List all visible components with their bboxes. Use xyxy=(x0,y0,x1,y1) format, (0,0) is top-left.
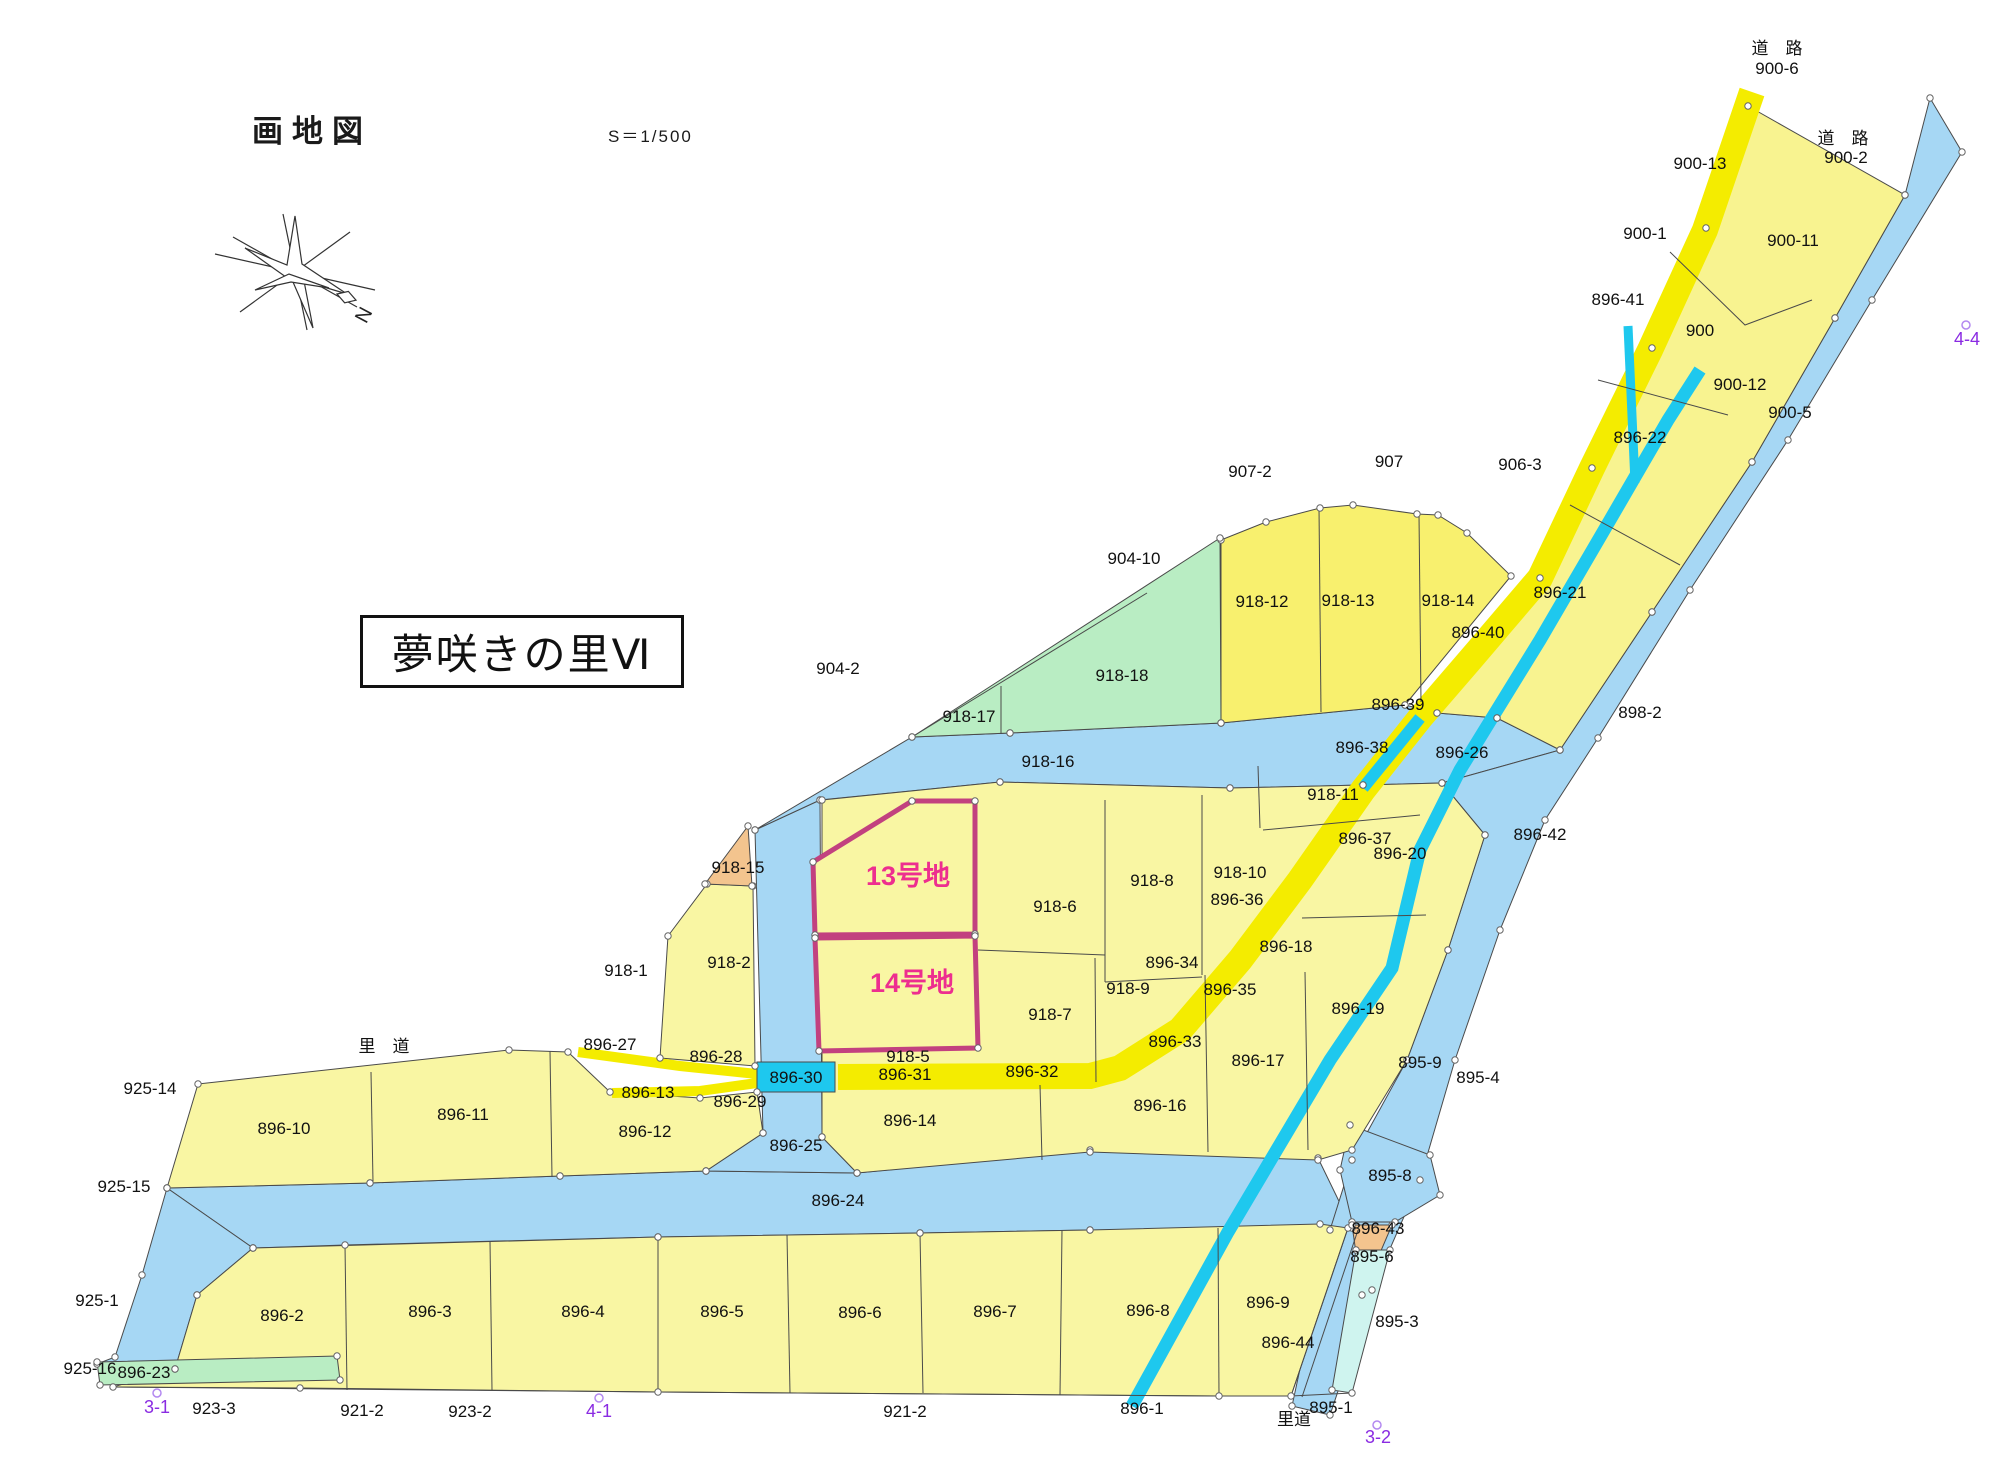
page-title: 画地図 xyxy=(252,106,372,151)
compass-rose-icon: N xyxy=(215,214,380,330)
parcel-label: 道 路 xyxy=(1818,129,1869,148)
survey-point xyxy=(1542,817,1548,823)
survey-point xyxy=(1427,1152,1433,1158)
parcel-label: 896-41 xyxy=(1592,290,1645,309)
survey-point xyxy=(1317,1221,1323,1227)
survey-point xyxy=(172,1366,178,1372)
parcel-label: 895-8 xyxy=(1368,1166,1411,1185)
parcel-label: 896-42 xyxy=(1514,825,1567,844)
parcel-label: 895-6 xyxy=(1350,1247,1393,1266)
survey-point xyxy=(1452,1057,1458,1063)
survey-point xyxy=(557,1173,563,1179)
survey-point xyxy=(749,883,755,889)
parcel-label: 896-34 xyxy=(1146,953,1199,972)
parcel-label: 896-38 xyxy=(1336,738,1389,757)
survey-point xyxy=(917,1230,923,1236)
survey-point xyxy=(1595,735,1601,741)
survey-point xyxy=(1414,511,1420,517)
survey-point xyxy=(297,1385,303,1391)
survey-point xyxy=(1329,1387,1335,1393)
survey-point xyxy=(1703,225,1709,231)
survey-point xyxy=(1369,1287,1375,1293)
survey-point xyxy=(1216,1393,1222,1399)
area-block-chain-900 xyxy=(1437,106,1905,750)
parcel-label: 896-14 xyxy=(884,1111,937,1130)
survey-point xyxy=(1227,785,1233,791)
benchmark-point xyxy=(153,1389,161,1397)
survey-point xyxy=(194,1292,200,1298)
parcel-label: 918-12 xyxy=(1236,592,1289,611)
survey-point xyxy=(703,1168,709,1174)
parcel-label: 900-13 xyxy=(1674,154,1727,173)
benchmark-label: 3-2 xyxy=(1365,1427,1391,1447)
survey-point xyxy=(1494,715,1500,721)
survey-point xyxy=(1337,1167,1343,1173)
survey-point xyxy=(997,779,1003,785)
survey-point xyxy=(810,859,816,865)
survey-point xyxy=(697,1095,703,1101)
survey-point xyxy=(1649,609,1655,615)
survey-point xyxy=(1349,1147,1355,1153)
map-scale-label: S＝1/500 xyxy=(608,122,693,147)
parcel-label: 918-11 xyxy=(1307,785,1359,804)
parcel-label: 918-15 xyxy=(712,858,765,877)
highlight-lot-label: 14号地 xyxy=(870,968,954,998)
parcel-label: 896-30 xyxy=(770,1068,823,1087)
survey-point xyxy=(1317,505,1323,511)
survey-point xyxy=(752,827,758,833)
survey-point xyxy=(1087,1149,1093,1155)
parcel-label: 918-9 xyxy=(1106,979,1149,998)
survey-point xyxy=(657,1055,663,1061)
parcel-label: 896-23 xyxy=(118,1363,171,1382)
survey-point xyxy=(1087,1227,1093,1233)
survey-point xyxy=(1497,927,1503,933)
parcel-label: 918-1 xyxy=(604,961,647,980)
parcel-label: 925-15 xyxy=(98,1177,151,1196)
parcel-label: 918-10 xyxy=(1214,863,1267,882)
survey-point xyxy=(1263,519,1269,525)
parcel-label: 896-25 xyxy=(770,1136,823,1155)
survey-point xyxy=(1434,710,1440,716)
survey-point xyxy=(752,1063,758,1069)
parcel-label: 895-1 xyxy=(1309,1398,1352,1417)
parcel-label: 896-1 xyxy=(1120,1399,1163,1418)
survey-point xyxy=(337,1377,343,1383)
highlight-lot-label: 13号地 xyxy=(866,861,950,891)
parcel-label: 907 xyxy=(1375,452,1403,471)
survey-point xyxy=(975,1045,981,1051)
parcel-label: 896-7 xyxy=(973,1302,1016,1321)
parcel-label: 918-16 xyxy=(1022,752,1075,771)
survey-point xyxy=(1649,345,1655,351)
survey-point xyxy=(1537,575,1543,581)
survey-point xyxy=(909,734,915,740)
survey-point xyxy=(972,798,978,804)
parcel-label: 896-9 xyxy=(1246,1293,1289,1312)
parcel-label: 900 xyxy=(1686,321,1714,340)
survey-point xyxy=(1437,1192,1443,1198)
survey-point xyxy=(565,1049,571,1055)
parcel-label: 896-2 xyxy=(260,1306,303,1325)
parcel-label: 道 路 xyxy=(1752,39,1803,58)
survey-point xyxy=(816,1048,822,1054)
survey-point xyxy=(1435,512,1441,518)
survey-point xyxy=(607,1089,613,1095)
benchmark-label: 4-4 xyxy=(1954,329,1980,349)
parcel-label: 896-44 xyxy=(1262,1333,1315,1352)
survey-point xyxy=(1959,149,1965,155)
parcel-label: 896-36 xyxy=(1211,890,1264,909)
parcel-label: 923-3 xyxy=(192,1399,235,1418)
parcel-label: 918-2 xyxy=(707,953,750,972)
parcel-map: N 道 路900-6道 路900-2900-13900-1900-11896-4… xyxy=(0,0,2000,1468)
parcel-label: 896-29 xyxy=(714,1092,767,1111)
survey-point xyxy=(854,1170,860,1176)
survey-point xyxy=(1417,1177,1423,1183)
parcel-label: 896-22 xyxy=(1614,428,1667,447)
survey-point xyxy=(110,1384,116,1390)
survey-point xyxy=(972,933,978,939)
survey-point xyxy=(1482,832,1488,838)
survey-point xyxy=(1927,95,1933,101)
parcel-label: 896-6 xyxy=(838,1303,881,1322)
parcel-label: 896-17 xyxy=(1232,1051,1285,1070)
parcel-label: 896-21 xyxy=(1534,583,1587,602)
survey-point xyxy=(1902,192,1908,198)
survey-point xyxy=(164,1185,170,1191)
parcel-label: 896-13 xyxy=(622,1083,675,1102)
survey-point xyxy=(195,1081,201,1087)
parcel-label: 925-16 xyxy=(64,1359,117,1378)
parcel-label: 896-43 xyxy=(1352,1219,1405,1238)
parcel-label: 895-9 xyxy=(1398,1053,1441,1072)
parcel-label: 900-11 xyxy=(1767,231,1819,250)
parcel-label: 900-6 xyxy=(1755,59,1798,78)
parcel-label: 896-18 xyxy=(1260,937,1313,956)
survey-point xyxy=(506,1047,512,1053)
parcel-label: 里道 xyxy=(1277,1410,1311,1429)
parcel-label: 904-10 xyxy=(1108,549,1161,568)
survey-point xyxy=(812,935,818,941)
survey-point xyxy=(1217,535,1223,541)
parcel-label: 918-6 xyxy=(1033,897,1076,916)
project-name-box: 夢咲きの里Ⅵ xyxy=(360,615,684,688)
parcel-label: 918-7 xyxy=(1028,1005,1071,1024)
cadastral-map-page: N 道 路900-6道 路900-2900-13900-1900-11896-4… xyxy=(0,0,2000,1468)
parcel-label: 900-1 xyxy=(1623,224,1666,243)
parcel-label: 896-32 xyxy=(1006,1062,1059,1081)
survey-point xyxy=(1464,530,1470,536)
parcel-label: 925-1 xyxy=(75,1291,118,1310)
parcel-label: 925-14 xyxy=(124,1079,177,1098)
parcel-label: 906-3 xyxy=(1498,455,1541,474)
survey-point xyxy=(97,1382,103,1388)
parcel-label: 896-39 xyxy=(1372,695,1425,714)
survey-point xyxy=(1749,459,1755,465)
parcel-label: 896-5 xyxy=(700,1302,743,1321)
parcel-label: 896-10 xyxy=(258,1119,311,1138)
parcel-label: 896-26 xyxy=(1436,743,1489,762)
benchmark-label: 3-1 xyxy=(144,1397,170,1417)
survey-point xyxy=(1360,782,1366,788)
area-parcel-918-2 xyxy=(660,884,755,1066)
parcel-label: 921-2 xyxy=(340,1401,383,1420)
survey-point xyxy=(1508,573,1514,579)
survey-point xyxy=(1439,780,1445,786)
survey-point xyxy=(1347,1122,1353,1128)
parcel-label: 918-13 xyxy=(1322,591,1375,610)
survey-point xyxy=(1687,587,1693,593)
survey-point xyxy=(702,881,708,887)
parcel-label: 896-27 xyxy=(584,1035,637,1054)
parcel-label: 896-19 xyxy=(1332,999,1385,1018)
survey-point xyxy=(1832,315,1838,321)
parcel-label: 904-2 xyxy=(816,659,859,678)
survey-point xyxy=(1445,947,1451,953)
parcel-label: 896-20 xyxy=(1374,844,1427,863)
parcel-label: 里 道 xyxy=(359,1037,410,1056)
parcel-label: 923-2 xyxy=(448,1402,491,1421)
survey-point xyxy=(819,797,825,803)
survey-point xyxy=(1349,1157,1355,1163)
survey-point xyxy=(334,1353,340,1359)
parcel-label: 896-24 xyxy=(812,1191,865,1210)
area-orange-918-15 xyxy=(705,826,752,886)
parcel-label: 918-14 xyxy=(1422,591,1475,610)
parcel-label: 896-28 xyxy=(690,1047,743,1066)
survey-point xyxy=(250,1245,256,1251)
parcel-label: 895-4 xyxy=(1456,1068,1499,1087)
parcel-label: 900-2 xyxy=(1824,148,1867,167)
survey-point xyxy=(909,798,915,804)
benchmark-label: 4-1 xyxy=(586,1401,612,1421)
survey-point xyxy=(1785,437,1791,443)
survey-point xyxy=(745,823,751,829)
parcel-label: 918-8 xyxy=(1130,871,1173,890)
parcel-label: 921-2 xyxy=(883,1402,926,1421)
parcel-label: 896-8 xyxy=(1126,1301,1169,1320)
survey-point xyxy=(1350,502,1356,508)
parcel-label: 896-16 xyxy=(1134,1096,1187,1115)
parcel-label: 918-5 xyxy=(886,1047,929,1066)
parcel-label: 918-17 xyxy=(943,707,996,726)
survey-point xyxy=(1289,1403,1295,1409)
parcel-label: 898-2 xyxy=(1618,703,1661,722)
parcel-label: 900-5 xyxy=(1768,403,1811,422)
survey-point xyxy=(1315,1157,1321,1163)
parcel-label: 896-11 xyxy=(437,1105,489,1124)
survey-point xyxy=(1218,720,1224,726)
parcel-label: 900-12 xyxy=(1714,375,1767,394)
survey-point xyxy=(665,933,671,939)
parcel-label: 896-4 xyxy=(561,1302,604,1321)
survey-point xyxy=(655,1389,661,1395)
parcel-label: 896-33 xyxy=(1149,1032,1202,1051)
survey-point xyxy=(1349,1390,1355,1396)
survey-point xyxy=(760,1130,766,1136)
parcel-label: 896-35 xyxy=(1204,980,1257,999)
survey-point xyxy=(139,1272,145,1278)
benchmark-point xyxy=(1962,321,1970,329)
survey-point xyxy=(1288,1393,1294,1399)
survey-point xyxy=(1557,747,1563,753)
survey-point xyxy=(1869,297,1875,303)
parcel-label: 896-12 xyxy=(619,1122,672,1141)
survey-point xyxy=(1589,465,1595,471)
survey-point xyxy=(367,1180,373,1186)
parcel-label: 918-18 xyxy=(1096,666,1149,685)
parcel-label: 896-40 xyxy=(1452,623,1505,642)
survey-point xyxy=(1745,103,1751,109)
parcel-label: 896-3 xyxy=(408,1302,451,1321)
survey-point xyxy=(655,1234,661,1240)
parcel-label: 907-2 xyxy=(1228,462,1271,481)
parcel-label: 896-31 xyxy=(879,1065,932,1084)
parcel-label: 895-3 xyxy=(1375,1312,1418,1331)
svg-text:N: N xyxy=(350,303,376,326)
survey-point xyxy=(1359,1292,1365,1298)
survey-point xyxy=(1007,730,1013,736)
survey-point xyxy=(342,1242,348,1248)
survey-point xyxy=(1327,1227,1333,1233)
